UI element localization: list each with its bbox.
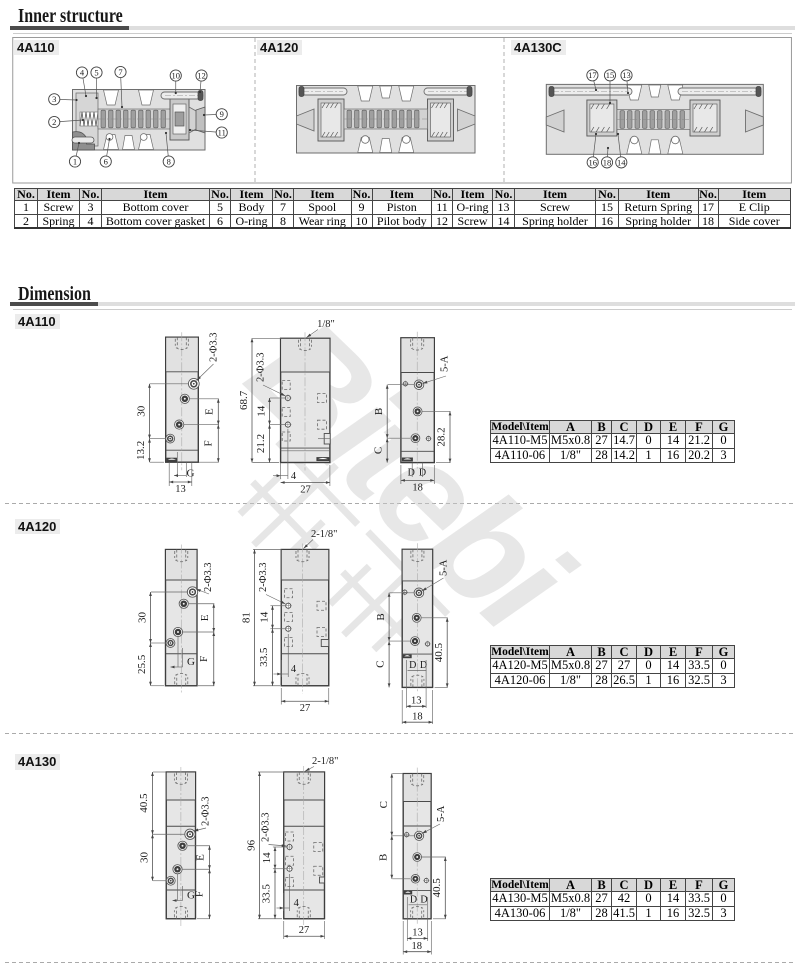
svg-text:6: 6 [104,156,108,166]
svg-text:5: 5 [94,67,98,77]
svg-text:F: F [202,440,214,446]
svg-text:30: 30 [137,612,149,624]
svg-text:B: B [373,408,385,415]
svg-text:2-Φ3.3: 2-Φ3.3 [201,796,212,826]
svg-text:4: 4 [291,471,297,482]
svg-text:5-A: 5-A [439,559,450,576]
svg-text:F: F [194,891,206,897]
svg-text:D: D [408,468,415,479]
svg-text:18: 18 [603,157,612,167]
svg-text:30: 30 [136,405,148,417]
svg-text:15: 15 [606,70,615,80]
svg-text:40.5: 40.5 [431,878,443,898]
svg-text:40.5: 40.5 [433,642,445,662]
svg-text:D: D [410,895,417,906]
svg-text:12: 12 [197,70,206,80]
svg-text:2-1/8": 2-1/8" [312,756,338,767]
svg-text:33.5: 33.5 [260,884,272,904]
svg-text:14: 14 [258,611,270,623]
svg-text:9: 9 [220,109,224,119]
svg-text:D: D [409,660,416,671]
svg-text:68.7: 68.7 [238,390,250,410]
svg-text:E: E [203,408,215,415]
svg-text:E: E [195,854,207,861]
svg-text:2-Φ3.3: 2-Φ3.3 [256,352,267,382]
svg-text:27: 27 [300,703,311,714]
svg-text:G: G [187,656,195,668]
svg-text:18: 18 [412,483,423,494]
svg-text:27: 27 [299,925,310,936]
svg-text:40.5: 40.5 [138,793,150,813]
svg-text:4: 4 [291,664,297,675]
svg-text:18: 18 [412,941,423,952]
svg-text:D: D [420,895,427,906]
svg-text:G: G [187,890,195,902]
svg-text:13: 13 [411,696,422,707]
svg-text:18: 18 [412,711,423,722]
svg-text:17: 17 [588,70,597,80]
svg-text:7: 7 [118,67,122,77]
svg-text:81: 81 [241,612,253,623]
svg-text:14: 14 [617,157,626,167]
svg-text:C: C [378,801,390,808]
svg-text:13.2: 13.2 [135,441,147,460]
svg-text:2-Φ3.3: 2-Φ3.3 [209,332,220,362]
svg-text:30: 30 [139,852,151,864]
svg-text:2-Φ3.3: 2-Φ3.3 [261,812,272,842]
svg-text:96: 96 [246,839,258,851]
svg-text:13: 13 [175,484,186,495]
svg-text:5-A: 5-A [440,355,451,372]
svg-text:C: C [373,447,385,454]
svg-text:25.5: 25.5 [136,654,148,674]
svg-text:14: 14 [261,852,273,864]
svg-text:G: G [187,468,195,480]
svg-text:28.2: 28.2 [436,427,448,446]
svg-text:3: 3 [52,94,56,104]
svg-text:33.5: 33.5 [258,647,270,667]
svg-text:2-1/8": 2-1/8" [311,529,337,540]
svg-text:2-Φ3.3: 2-Φ3.3 [258,562,269,592]
svg-text:5-A: 5-A [436,805,447,822]
svg-text:16: 16 [588,157,597,167]
svg-text:11: 11 [218,127,226,137]
svg-text:13: 13 [412,928,423,939]
svg-text:B: B [375,613,387,620]
svg-text:E: E [199,614,211,621]
svg-text:8: 8 [167,156,171,166]
svg-text:21.2: 21.2 [255,434,267,453]
svg-text:14: 14 [255,405,267,417]
svg-text:2: 2 [52,117,56,127]
svg-text:1: 1 [73,156,77,166]
svg-text:F: F [198,656,210,662]
svg-text:2-Φ3.3: 2-Φ3.3 [203,562,214,592]
svg-text:C: C [375,661,387,668]
svg-text:13: 13 [622,70,631,80]
svg-text:B: B [377,854,389,861]
svg-text:1/8": 1/8" [317,319,335,330]
svg-text:27: 27 [300,485,311,496]
svg-text:4: 4 [294,898,300,909]
svg-text:10: 10 [172,70,181,80]
